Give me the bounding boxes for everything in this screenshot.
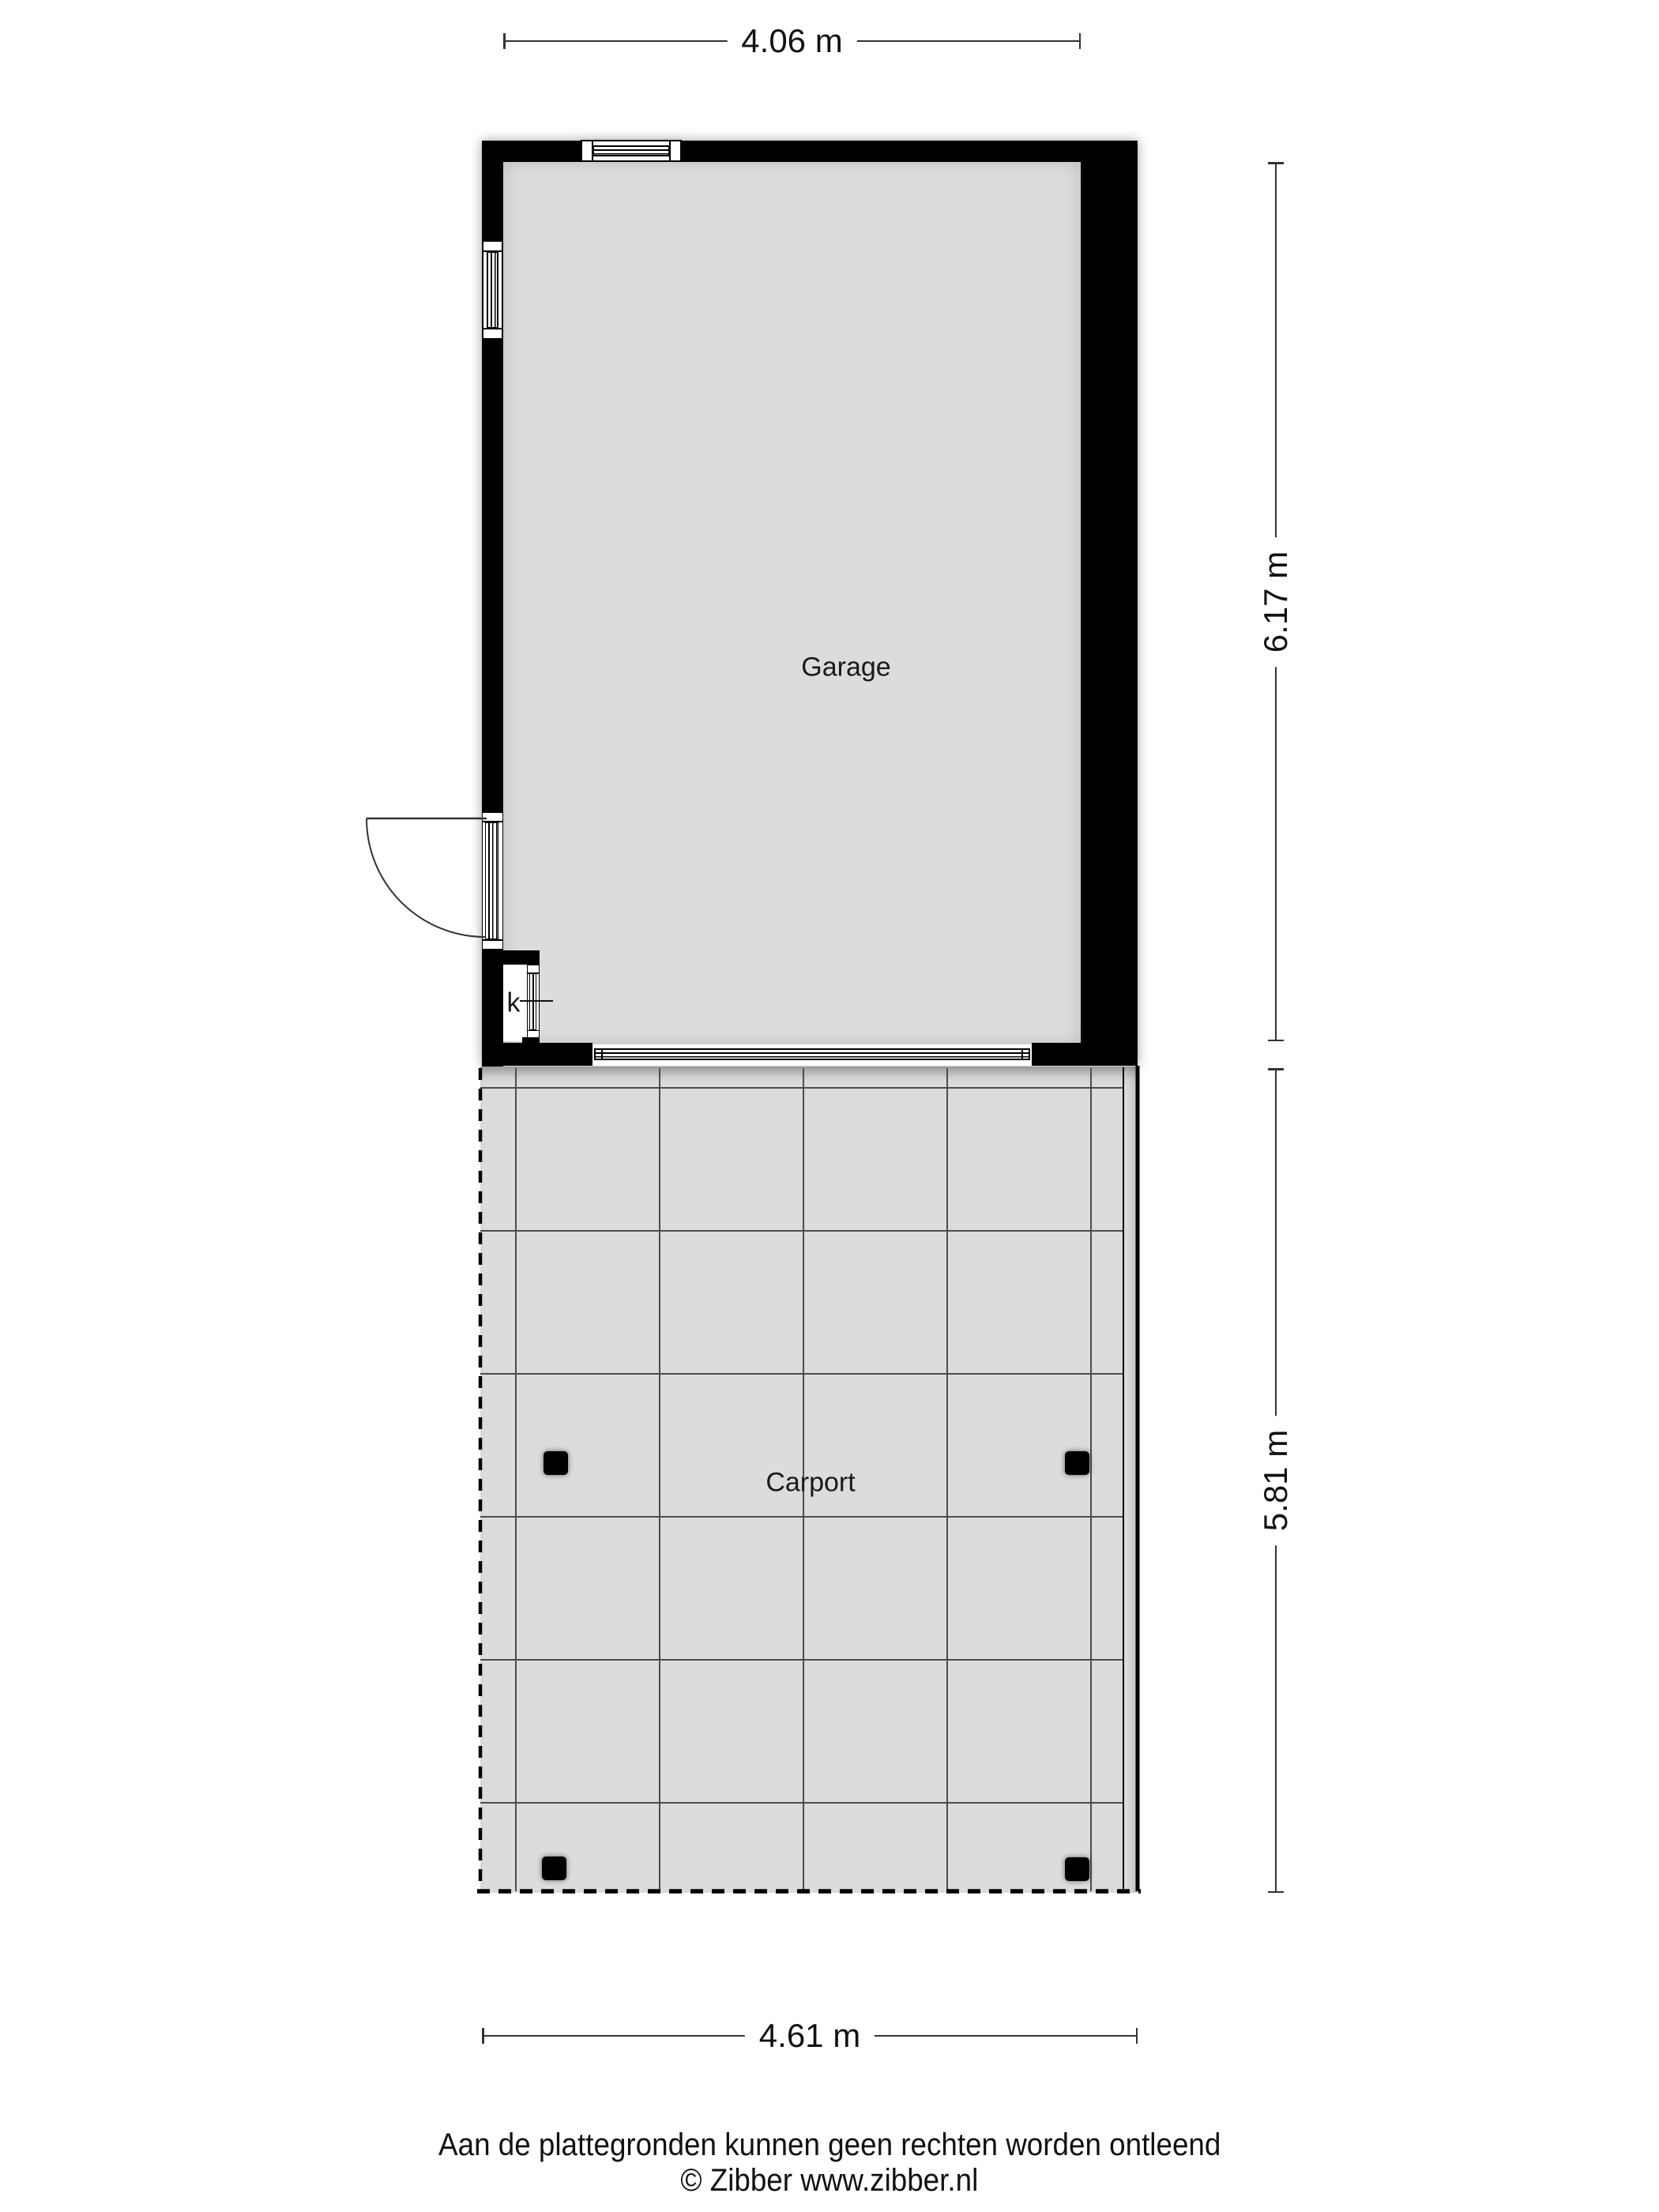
- closet-top-wall: [503, 950, 540, 965]
- dimension-bottom-label: 4.61 m: [745, 2017, 875, 2055]
- dimension-bottom: 4.61 m: [482, 2025, 1138, 2047]
- closet-label: k: [507, 988, 521, 1019]
- wall-top-right-segment: [682, 141, 1138, 162]
- footer-disclaimer: Aan de plattegronden kunnen geen rechten…: [0, 2127, 1659, 2163]
- dimension-right-upper-label: 6.17 m: [1257, 536, 1295, 666]
- closet-stub-wall: [522, 1037, 540, 1044]
- carport-pillar-top-left: [544, 1451, 568, 1475]
- carport-label: Carport: [766, 1468, 855, 1499]
- floorplan-page: { "rooms": { "garage": "Garage", "carpor…: [0, 0, 1659, 2212]
- garage-label: Garage: [801, 653, 890, 683]
- carport-pillar-top-right: [1065, 1451, 1089, 1475]
- wall-left-middle-segment: [482, 340, 503, 812]
- wall-right: [1081, 141, 1138, 1066]
- wall-bottom-left-segment: [482, 1043, 592, 1066]
- dimension-right-lower: 5.81 m: [1265, 1068, 1287, 1893]
- dimension-top-label: 4.06 m: [727, 22, 856, 60]
- garage-door-icon: [594, 1048, 1030, 1060]
- garage-door-opening: [592, 1044, 1032, 1066]
- left-window-icon: [482, 240, 503, 340]
- closet-door-icon: [527, 965, 540, 1039]
- dimension-right-upper: 6.17 m: [1265, 162, 1287, 1041]
- dimension-top: 4.06 m: [503, 30, 1081, 52]
- wall-left-upper-segment: [482, 141, 503, 240]
- top-window-icon: [581, 140, 682, 162]
- footer-copyright: © Zibber www.zibber.nl: [0, 2163, 1659, 2199]
- entry-door-frame: [482, 812, 503, 950]
- carport-pillar-bottom-left: [542, 1856, 566, 1880]
- carport-pillar-bottom-right: [1065, 1857, 1089, 1881]
- garage-floor: [503, 162, 1081, 1044]
- wall-bottom-right-segment: [1032, 1043, 1138, 1066]
- dimension-right-lower-label: 5.81 m: [1257, 1416, 1295, 1545]
